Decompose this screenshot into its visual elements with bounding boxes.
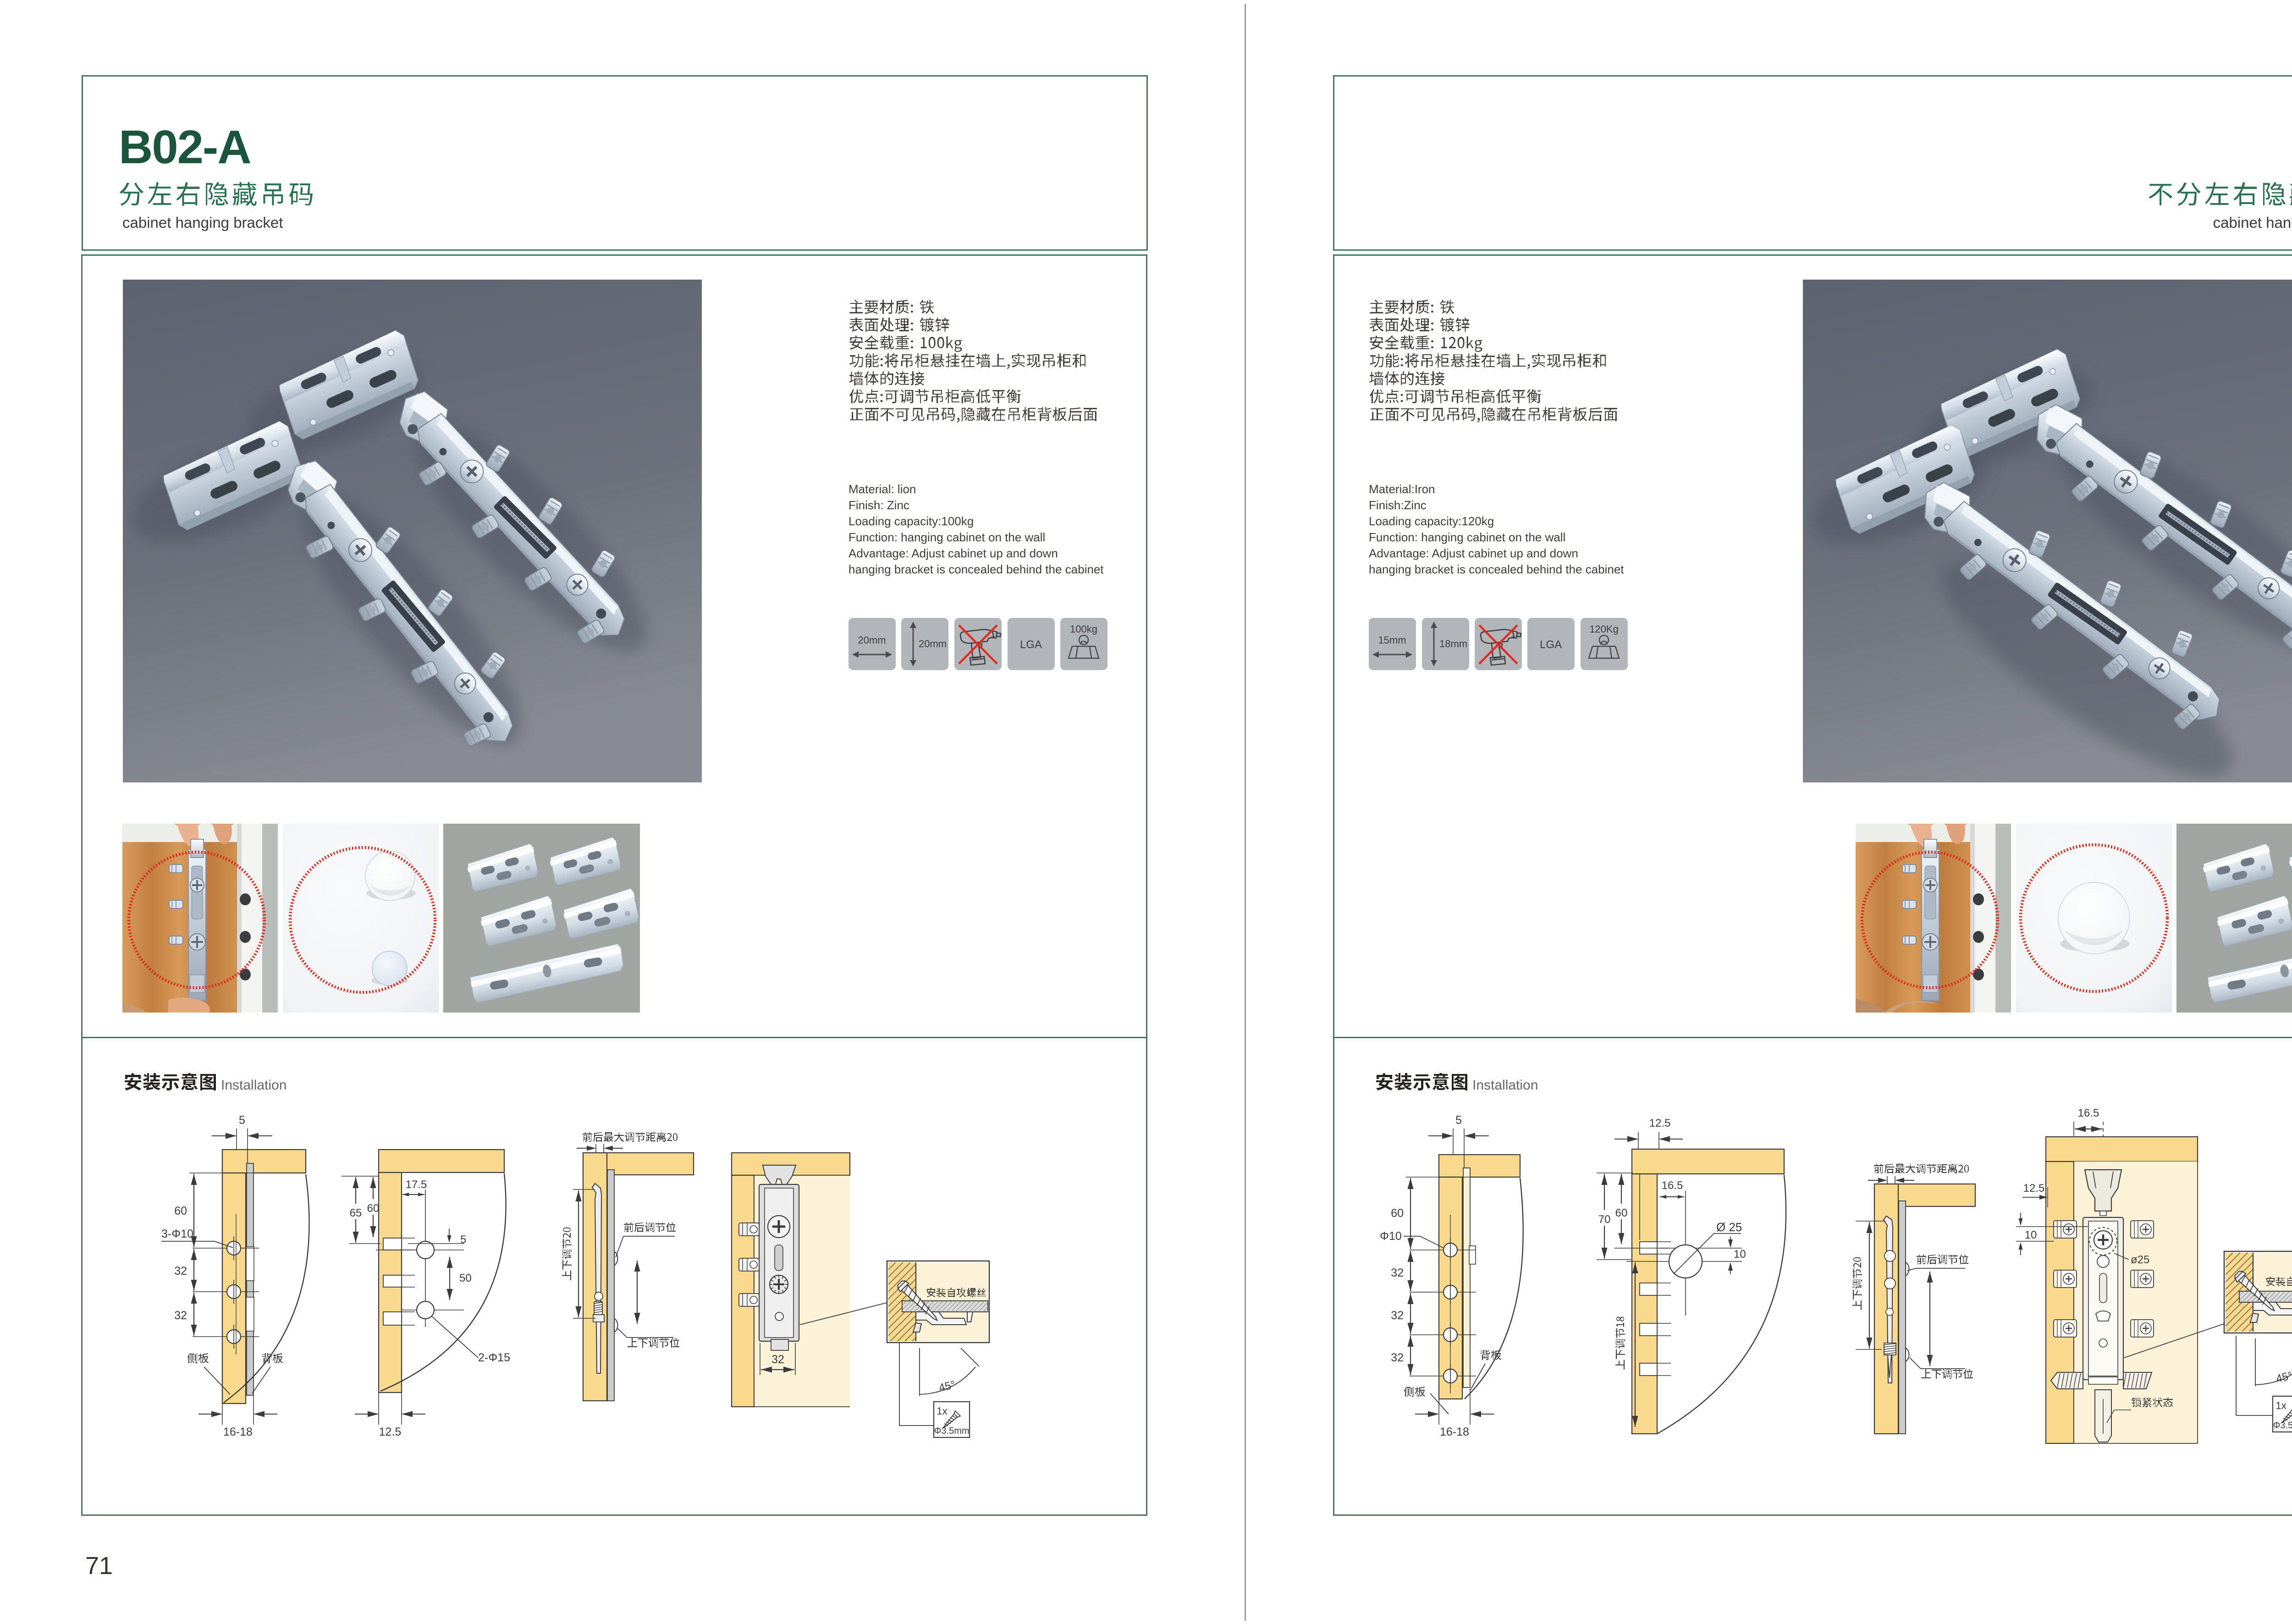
svg-text:Φ10: Φ10: [1380, 1230, 1402, 1243]
svg-text:5: 5: [239, 1114, 245, 1127]
svg-text:5: 5: [1455, 1114, 1462, 1127]
svg-text:1x: 1x: [937, 1405, 947, 1417]
svg-text:60: 60: [367, 1202, 380, 1215]
svg-text:18mm: 18mm: [1439, 638, 1467, 650]
svg-text:65: 65: [350, 1207, 362, 1219]
svg-text:32: 32: [1391, 1266, 1404, 1279]
svg-text:Φ3.5mm: Φ3.5mm: [2273, 1420, 2292, 1431]
svg-text:120Kg: 120Kg: [1589, 623, 1619, 635]
svg-text:17.5: 17.5: [406, 1178, 427, 1191]
svg-text:16-18: 16-18: [1440, 1426, 1469, 1438]
svg-text:32: 32: [1391, 1309, 1404, 1322]
svg-text:32: 32: [771, 1353, 784, 1366]
svg-text:12.5: 12.5: [2023, 1182, 2045, 1195]
svg-text:16.5: 16.5: [1662, 1179, 1683, 1192]
svg-text:60: 60: [1615, 1207, 1628, 1219]
svg-text:10: 10: [1734, 1248, 1746, 1261]
svg-text:Φ3.5mm: Φ3.5mm: [934, 1426, 969, 1436]
svg-text:3-Φ10: 3-Φ10: [161, 1228, 193, 1240]
svg-text:50: 50: [459, 1272, 472, 1284]
svg-text:32: 32: [174, 1265, 187, 1277]
svg-text:LGA: LGA: [1020, 639, 1042, 651]
svg-text:70: 70: [1598, 1213, 1611, 1226]
svg-text:12.5: 12.5: [379, 1426, 402, 1438]
svg-text:5: 5: [460, 1233, 466, 1246]
svg-text:LGA: LGA: [1540, 639, 1562, 651]
svg-text:20mm: 20mm: [858, 634, 886, 646]
svg-text:60: 60: [1391, 1207, 1404, 1220]
svg-text:2-Φ15: 2-Φ15: [478, 1351, 510, 1364]
svg-text:45°: 45°: [2275, 1369, 2292, 1385]
svg-text:16-18: 16-18: [223, 1426, 253, 1438]
svg-text:12.5: 12.5: [1649, 1117, 1671, 1129]
svg-text:15mm: 15mm: [1378, 634, 1406, 646]
svg-text:45°: 45°: [937, 1378, 957, 1394]
svg-text:10: 10: [2025, 1229, 2037, 1241]
svg-text:32: 32: [174, 1309, 187, 1322]
svg-text:32: 32: [1391, 1351, 1404, 1364]
svg-text:20mm: 20mm: [919, 638, 947, 650]
svg-text:100kg: 100kg: [1070, 623, 1097, 635]
svg-text:ø25: ø25: [2131, 1254, 2149, 1266]
svg-text:1x: 1x: [2275, 1400, 2286, 1411]
svg-text:Ø 25: Ø 25: [1716, 1220, 1742, 1234]
svg-text:16.5: 16.5: [2078, 1107, 2099, 1119]
svg-text:60: 60: [174, 1205, 187, 1217]
